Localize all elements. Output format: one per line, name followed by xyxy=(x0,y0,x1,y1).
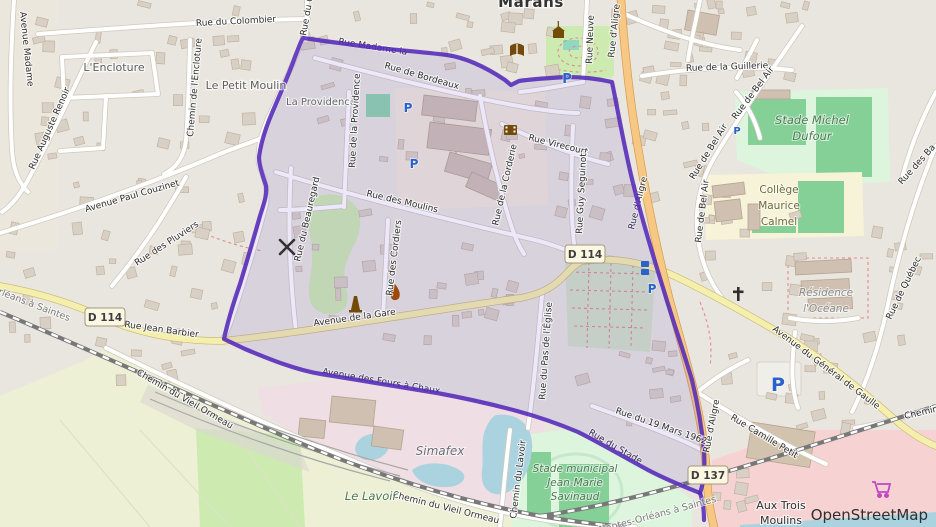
area-label-stade-municipal-2: Jean-Marie xyxy=(545,477,603,489)
area-label-residence-1: Résidence xyxy=(799,287,853,299)
place-label-l-encloture: L'Encloture xyxy=(83,61,144,74)
cinema-icon xyxy=(504,125,517,135)
area-label-stade-municipal-3: Savinaud xyxy=(551,491,600,503)
parking-icon: P xyxy=(648,282,657,296)
town-name-label: Marans xyxy=(498,0,564,11)
place-label-aux-trois-moulins-1: Aux Trois xyxy=(756,499,806,512)
parking-icon: P xyxy=(410,157,419,171)
svg-text:D 137: D 137 xyxy=(691,470,725,482)
route-badge-d114-west: D 114 xyxy=(85,308,125,326)
parking-icon: P xyxy=(562,72,572,87)
parking-icon: P xyxy=(404,101,413,115)
area-label-stade-municipal-1: Stade municipal xyxy=(533,463,618,475)
route-badge-d137: D 137 xyxy=(688,466,728,484)
area-label-college-2: Maurice xyxy=(758,200,800,212)
attribution-link[interactable]: OpenStreetMap xyxy=(811,506,928,524)
street-label-rue-neuve: Rue Neuve xyxy=(585,15,597,65)
library-book-icon xyxy=(510,44,524,57)
route-badge-d114-east: D 114 xyxy=(565,245,605,263)
map-canvas[interactable]: Rue Madame la Avenue des Fours à Chaux R… xyxy=(0,0,936,527)
place-label-la-providence: La Providence xyxy=(286,97,356,108)
place-label-aux-trois-moulins-2: Moulins xyxy=(760,514,802,527)
area-label-college-3: Calmel xyxy=(761,216,797,228)
area-label-residence-2: l'Océane xyxy=(803,303,849,315)
parking-icon: P xyxy=(733,126,740,137)
area-label-le-lavoir: Le Lavoir xyxy=(345,489,399,503)
svg-text:D 114: D 114 xyxy=(568,249,602,261)
svg-text:D 114: D 114 xyxy=(88,312,122,324)
parking-icon: P xyxy=(771,374,785,396)
area-label-simafex: Simafex xyxy=(416,444,466,458)
place-label-le-petit-moulin: Le Petit Moulin xyxy=(206,79,287,92)
area-label-stade-dufour-2: Dufour xyxy=(792,129,833,143)
area-label-college-1: Collège xyxy=(759,184,798,196)
area-label-stade-dufour-1: Stade Michel xyxy=(775,113,850,127)
